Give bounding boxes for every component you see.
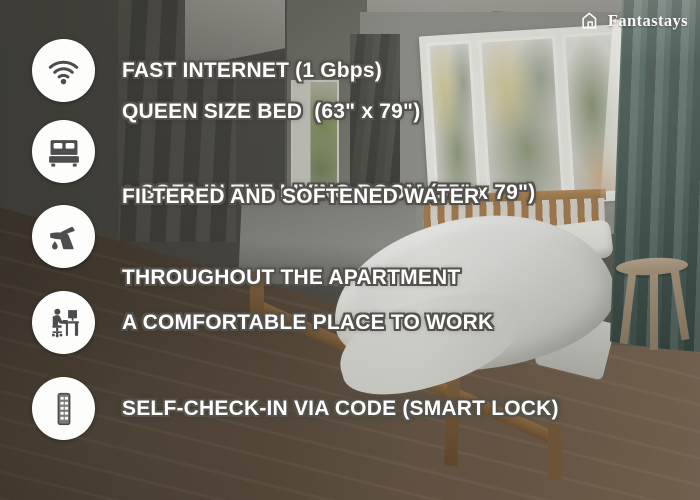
desk-workstation-icon: [45, 304, 83, 342]
bed-icon: [45, 133, 83, 171]
brand-name: Fantastays: [608, 11, 688, 31]
brand-logo: Fantastays: [579, 9, 688, 32]
bed-icon-badge: [32, 120, 95, 183]
feature-line: FILTERED AND SOFTENED WATER: [122, 183, 479, 210]
keypad-icon: [44, 389, 84, 429]
house-icon: [579, 9, 601, 32]
wifi-icon-badge: [32, 39, 95, 102]
keypad-icon-badge: [32, 377, 95, 440]
feature-line: A COMFORTABLE PLACE TO WORK: [122, 309, 493, 336]
feature-line: QUEEN SIZE BED (63" x 79"): [122, 98, 535, 125]
feature-text: SELF-CHECK-IN VIA CODE (SMART LOCK): [122, 341, 559, 476]
wifi-icon: [46, 53, 81, 88]
faucet-icon-badge: [32, 205, 95, 268]
feature-row-self-check-in: SELF-CHECK-IN VIA CODE (SMART LOCK): [32, 377, 696, 440]
desk-workstation-icon-badge: [32, 291, 95, 354]
faucet-icon: [46, 219, 82, 255]
feature-line: SELF-CHECK-IN VIA CODE (SMART LOCK): [122, 395, 559, 422]
promo-image: Fantastays FAST INTERNET (1 Gbps): [0, 0, 700, 500]
